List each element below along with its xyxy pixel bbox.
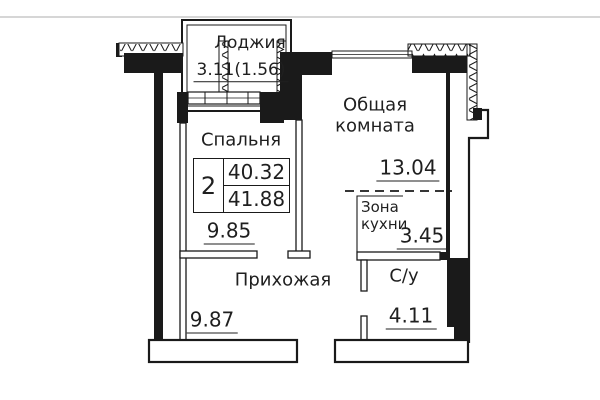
bedroom-living-partition [288,120,310,258]
living-room-window [332,51,412,58]
kitchen-zone-area: 3.45 [397,225,448,248]
hallway-area: 9.87 [187,309,238,332]
bathroom-label: С/у [389,267,418,288]
loggia-left-jamb-wall [177,92,188,123]
apartment-stamp: 2 40.32 41.88 [193,158,290,213]
stamp-area-top: 40.32 [224,159,289,185]
floor-plan: Лоджия 3.11(1.56) Спальня 2 40.32 41.88 … [0,0,600,400]
bottom-wall-left [149,340,297,362]
loggia-window-block [188,92,260,104]
living-room-area: 13.04 [376,157,439,180]
bedroom-label: Спальня [201,131,281,152]
stamp-area-bottom: 41.88 [224,185,289,212]
bathroom-area: 4.11 [386,305,437,328]
left-interior-wall [180,123,186,340]
floor-plan-drawing [0,0,600,400]
right-wall [440,73,469,341]
right-wall-pilaster [469,110,488,343]
bedroom-area: 9.85 [204,220,255,243]
stamp-rooms-count: 2 [194,159,224,212]
hallway-label: Прихожая [235,271,331,292]
bottom-wall-right [335,340,468,362]
bedroom-hallway-wall [180,251,257,258]
loggia-label: Лоджия [214,34,286,54]
living-room-label: Общая комната [335,95,415,136]
left-exterior-wall [124,53,183,340]
loggia-area: 3.11(1.56) [194,61,289,81]
